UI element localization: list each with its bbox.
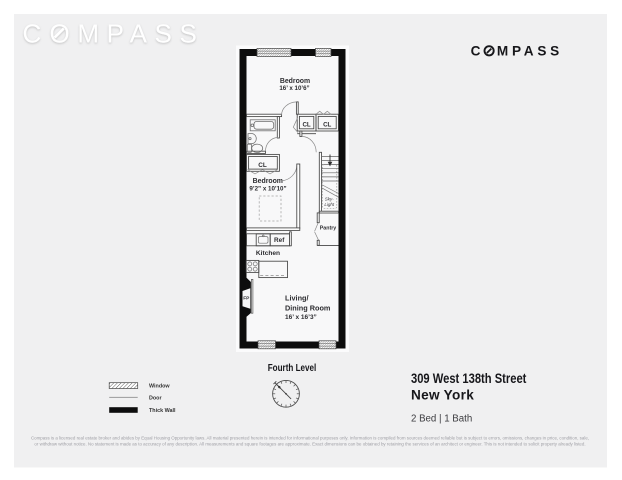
svg-text:Ref: Ref (274, 237, 285, 244)
svg-text:FP: FP (243, 296, 250, 302)
svg-text:Sky-: Sky- (325, 197, 335, 202)
svg-text:C: C (23, 18, 49, 48)
svg-text:Living/: Living/ (285, 293, 309, 302)
svg-text:Bedroom: Bedroom (253, 178, 283, 185)
svg-text:CL: CL (258, 162, 267, 169)
svg-text:Compass is a licensed real est: Compass is a licensed real estate broker… (31, 435, 589, 440)
svg-text:Dining Room: Dining Room (285, 303, 331, 312)
svg-text:Thick Wall: Thick Wall (149, 408, 176, 414)
svg-text:or withdraw without notice. No: or withdraw without notice. No statement… (34, 442, 585, 447)
svg-text:Pantry: Pantry (320, 226, 337, 232)
svg-text:CL: CL (302, 122, 310, 129)
svg-text:OMPASS: OMPASS (50, 18, 205, 48)
svg-text:16’ x 10’6”: 16’ x 10’6” (279, 85, 309, 92)
svg-text:Kitchen: Kitchen (256, 250, 280, 257)
svg-text:16’ x 16’3”: 16’ x 16’3” (285, 314, 317, 321)
svg-text:Fourth Level: Fourth Level (268, 362, 317, 373)
svg-text:309 West 138th Street: 309 West 138th Street (411, 371, 527, 386)
svg-text:CL: CL (323, 122, 331, 129)
svg-text:New York: New York (411, 388, 474, 403)
svg-text:Door: Door (149, 395, 162, 401)
svg-text:2 Bed | 1 Bath: 2 Bed | 1 Bath (411, 414, 472, 425)
svg-text:Light: Light (324, 202, 335, 207)
svg-text:MPASS: MPASS (497, 44, 563, 59)
svg-text:Window: Window (149, 384, 170, 390)
svg-text:9’2” x 10’10”: 9’2” x 10’10” (249, 186, 286, 193)
svg-text:C: C (471, 44, 485, 59)
